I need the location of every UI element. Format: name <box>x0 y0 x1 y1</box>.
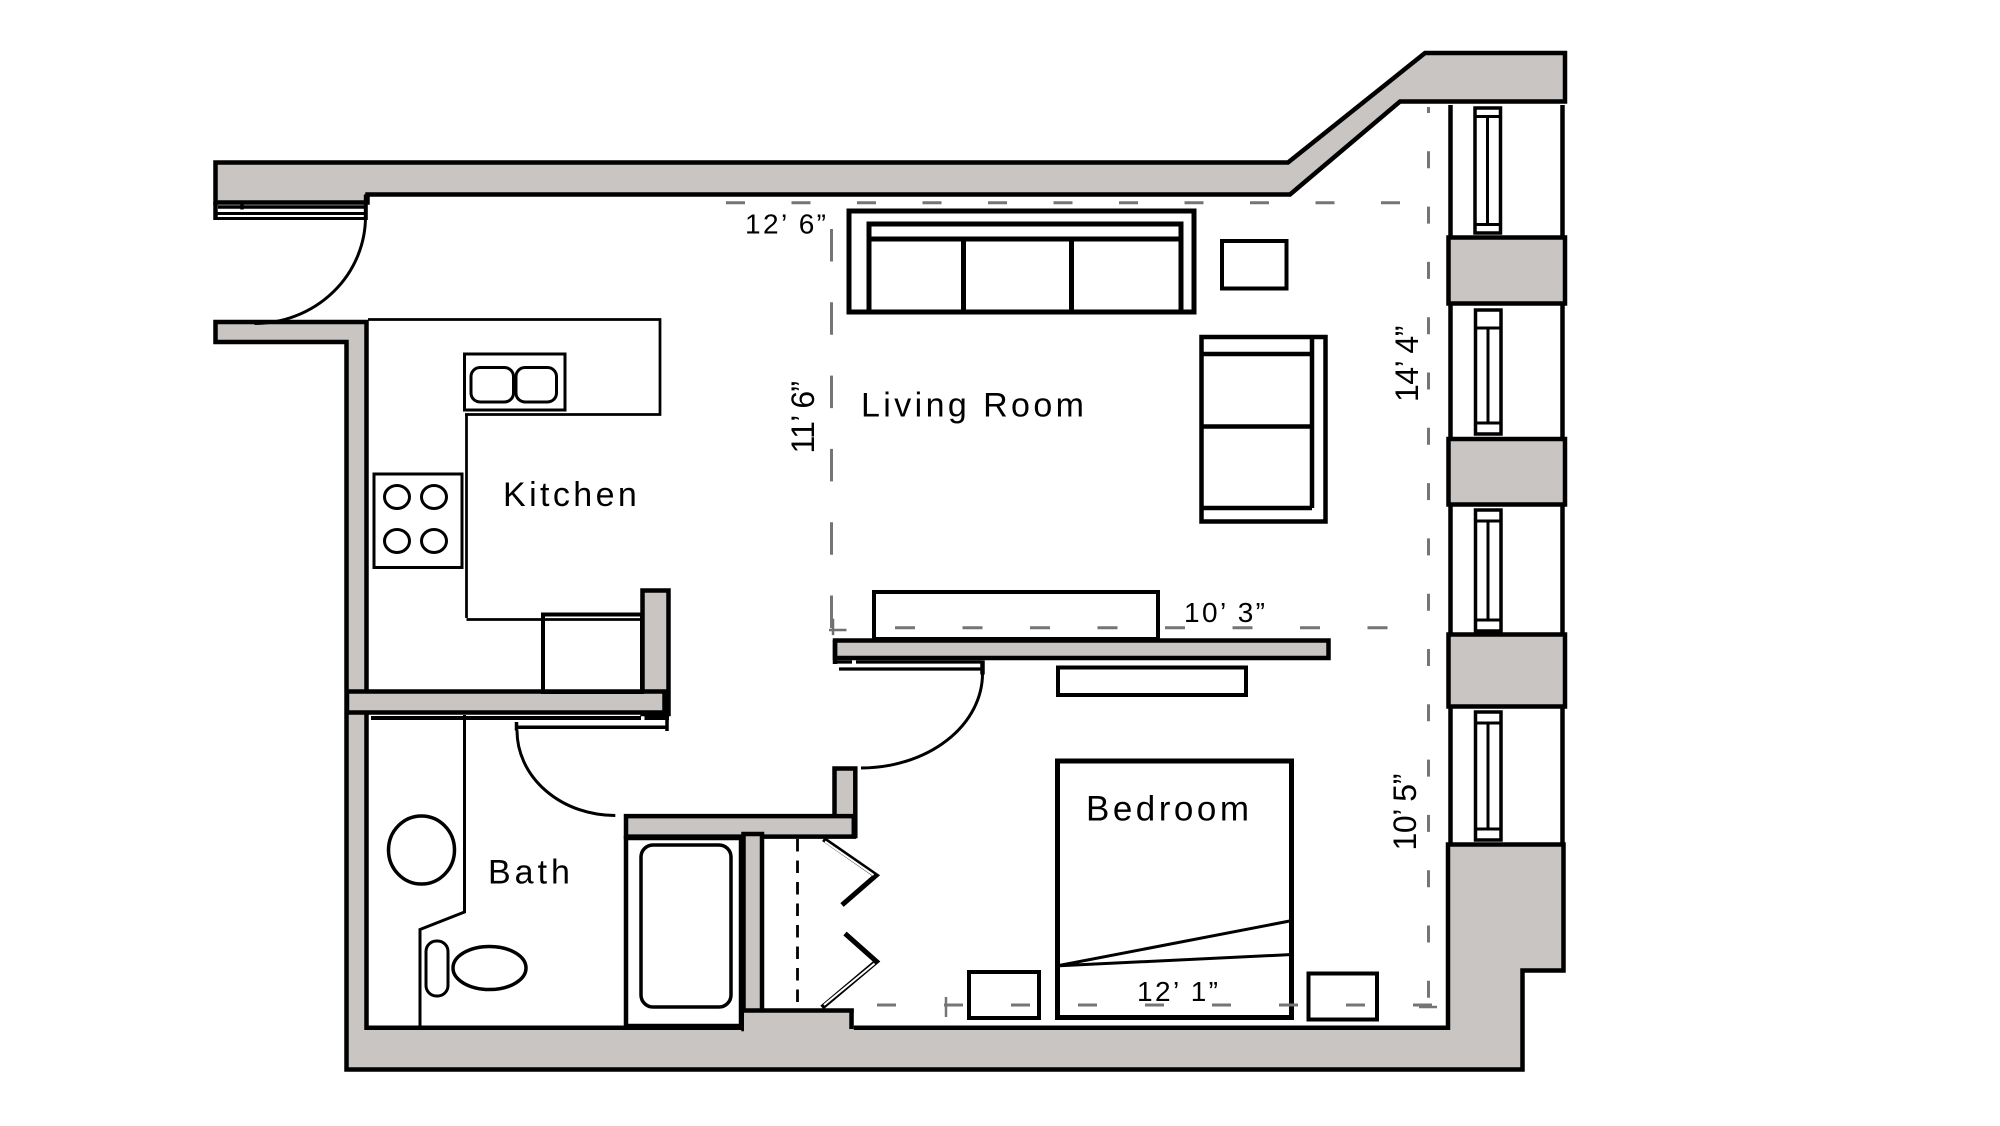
svg-text:14’ 4”: 14’ 4” <box>1389 326 1425 402</box>
svg-text:Kitchen: Kitchen <box>503 476 640 514</box>
svg-text:11’ 6”: 11’ 6” <box>785 382 821 454</box>
svg-text:12’ 1”: 12’ 1” <box>1137 976 1220 1007</box>
svg-text:Living Room: Living Room <box>861 386 1087 424</box>
svg-text:10’ 5”: 10’ 5” <box>1387 774 1423 850</box>
svg-text:Bedroom: Bedroom <box>1086 790 1253 829</box>
svg-text:12’ 6”: 12’ 6” <box>745 209 828 240</box>
svg-text:10’ 3”: 10’ 3” <box>1184 597 1267 628</box>
svg-text:Bath: Bath <box>488 854 574 892</box>
